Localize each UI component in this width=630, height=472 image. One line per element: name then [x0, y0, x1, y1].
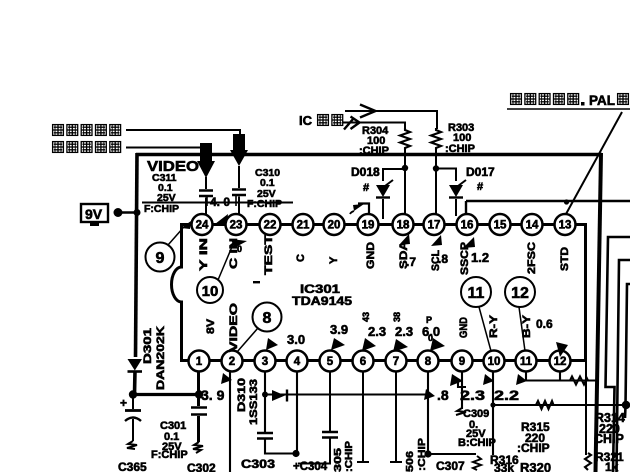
svg-text:C: C [295, 254, 307, 262]
svg-text:P: P [426, 315, 432, 325]
svg-text:14: 14 [526, 220, 539, 232]
svg-text:18: 18 [397, 220, 410, 232]
svg-text:#: # [363, 182, 369, 194]
svg-text:2: 2 [229, 356, 235, 368]
svg-text:F:CHIP: F:CHIP [151, 449, 188, 461]
svg-text:STD: STD [559, 247, 571, 271]
svg-text:GND: GND [365, 242, 377, 269]
svg-text:9: 9 [459, 356, 465, 368]
svg-text:GND: GND [458, 317, 470, 338]
svg-text::CHIP: :CHIP [517, 441, 550, 455]
svg-text:13: 13 [559, 220, 572, 232]
svg-text:22: 22 [264, 220, 277, 232]
svg-text:2.3: 2.3 [395, 324, 413, 339]
svg-text:19: 19 [362, 220, 375, 232]
svg-text:TEST: TEST [263, 235, 275, 275]
svg-text:DAN202K: DAN202K [155, 326, 167, 390]
svg-text:Y IN: Y IN [198, 238, 210, 271]
svg-text:10: 10 [202, 283, 219, 300]
svg-text:1.2: 1.2 [471, 250, 489, 265]
svg-text:11: 11 [468, 285, 485, 302]
svg-text:4. 0: 4. 0 [210, 195, 230, 209]
svg-text:CHIP: CHIP [594, 432, 624, 446]
svg-text:VIDEO: VIDEO [228, 302, 240, 352]
svg-text:0.6: 0.6 [536, 317, 553, 331]
svg-text:D018: D018 [351, 165, 380, 179]
svg-text:F:CHIP: F:CHIP [144, 203, 179, 215]
svg-text::CHIP: :CHIP [343, 441, 355, 472]
svg-text:D017: D017 [466, 165, 495, 179]
svg-text:6: 6 [360, 356, 366, 368]
svg-text:.8: .8 [437, 387, 449, 403]
svg-text:2FSC: 2FSC [526, 242, 538, 274]
svg-text:1SS133: 1SS133 [248, 379, 260, 425]
svg-text:43: 43 [361, 312, 371, 322]
svg-text:C365: C365 [118, 460, 147, 472]
svg-text:C302: C302 [187, 461, 216, 472]
svg-text:2.2: 2.2 [494, 387, 519, 403]
svg-text:9V: 9V [85, 206, 103, 222]
svg-text:24: 24 [196, 220, 209, 232]
svg-text:21: 21 [297, 220, 310, 232]
svg-text:12: 12 [554, 356, 567, 368]
svg-text:#: # [477, 181, 483, 193]
svg-text:C307: C307 [436, 459, 465, 472]
svg-text:3: 3 [262, 356, 268, 368]
svg-text:0: 0 [428, 333, 433, 343]
svg-text:C303: C303 [241, 457, 275, 471]
svg-text:R320: R320 [520, 460, 551, 472]
svg-text:38: 38 [392, 312, 402, 322]
svg-text:16: 16 [461, 220, 474, 232]
svg-text:15: 15 [494, 220, 507, 232]
svg-text:33k: 33k [494, 461, 514, 472]
svg-text:.8: .8 [438, 252, 448, 266]
svg-text:4: 4 [294, 356, 301, 368]
svg-text:3.9: 3.9 [330, 322, 348, 337]
svg-text:20: 20 [328, 220, 341, 232]
svg-text:F:CHIP: F:CHIP [247, 198, 282, 210]
svg-text:17: 17 [428, 220, 441, 232]
svg-text:PAL: PAL [589, 93, 615, 108]
svg-text:1: 1 [196, 356, 203, 368]
svg-text:D301: D301 [142, 328, 154, 364]
svg-text:10: 10 [488, 356, 501, 368]
svg-text:9: 9 [156, 250, 165, 267]
svg-text:8: 8 [263, 310, 272, 327]
svg-text:+: + [120, 396, 127, 410]
svg-text:8V: 8V [205, 318, 217, 334]
svg-text:3. 9: 3. 9 [201, 387, 225, 403]
svg-text:Y: Y [328, 256, 340, 264]
svg-text:23: 23 [230, 220, 243, 232]
svg-text:506: 506 [404, 451, 416, 472]
svg-text:TDA9145: TDA9145 [292, 294, 352, 308]
svg-text:11: 11 [520, 356, 533, 368]
svg-text::CHIP: :CHIP [359, 145, 389, 157]
svg-text:12: 12 [511, 285, 529, 302]
svg-text:D310: D310 [236, 378, 248, 412]
svg-text:2.3: 2.3 [368, 324, 386, 339]
svg-text:5: 5 [327, 356, 334, 368]
svg-text:8: 8 [425, 356, 432, 368]
svg-text:B:CHIP: B:CHIP [458, 437, 496, 449]
svg-text:2.3: 2.3 [460, 387, 485, 403]
svg-text:IC: IC [299, 113, 313, 128]
svg-text:1k: 1k [605, 460, 619, 472]
svg-text:7: 7 [393, 356, 399, 368]
svg-text:3.0: 3.0 [287, 332, 305, 347]
svg-text:R-Y: R-Y [488, 314, 500, 338]
svg-text::CHIP: :CHIP [445, 143, 475, 155]
svg-text:.7: .7 [406, 255, 416, 269]
